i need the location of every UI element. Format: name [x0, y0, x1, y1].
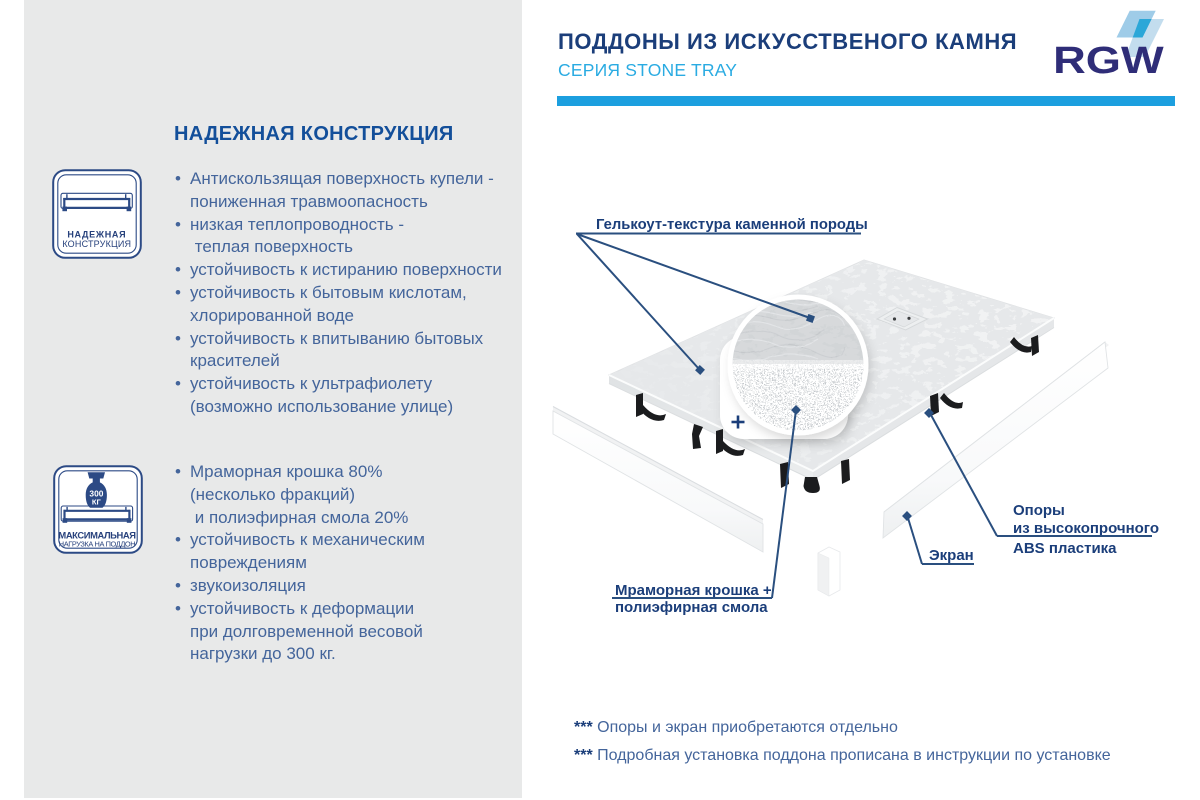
svg-text:Экран: Экран — [929, 547, 974, 564]
svg-text:из высокопрочного: из высокопрочного — [1013, 520, 1159, 537]
svg-text:Опоры: Опоры — [1013, 502, 1065, 519]
svg-text:Гелькоут-текстура каменной пор: Гелькоут-текстура каменной породы — [596, 217, 868, 233]
svg-text:RGW: RGW — [1053, 38, 1164, 81]
svg-text:полиэфирная смола: полиэфирная смола — [615, 599, 768, 616]
svg-text:КОНСТРУКЦИЯ: КОНСТРУКЦИЯ — [62, 239, 131, 249]
svg-text:НАДЕЖНАЯ: НАДЕЖНАЯ — [67, 230, 126, 240]
svg-text:Мраморная крошка +: Мраморная крошка + — [615, 582, 772, 599]
svg-text:КГ: КГ — [92, 498, 102, 507]
svg-text:ABS пластика: ABS пластика — [1013, 540, 1117, 557]
svg-text:НАГРУЗКА НА ПОДДОН: НАГРУЗКА НА ПОДДОН — [59, 539, 135, 548]
